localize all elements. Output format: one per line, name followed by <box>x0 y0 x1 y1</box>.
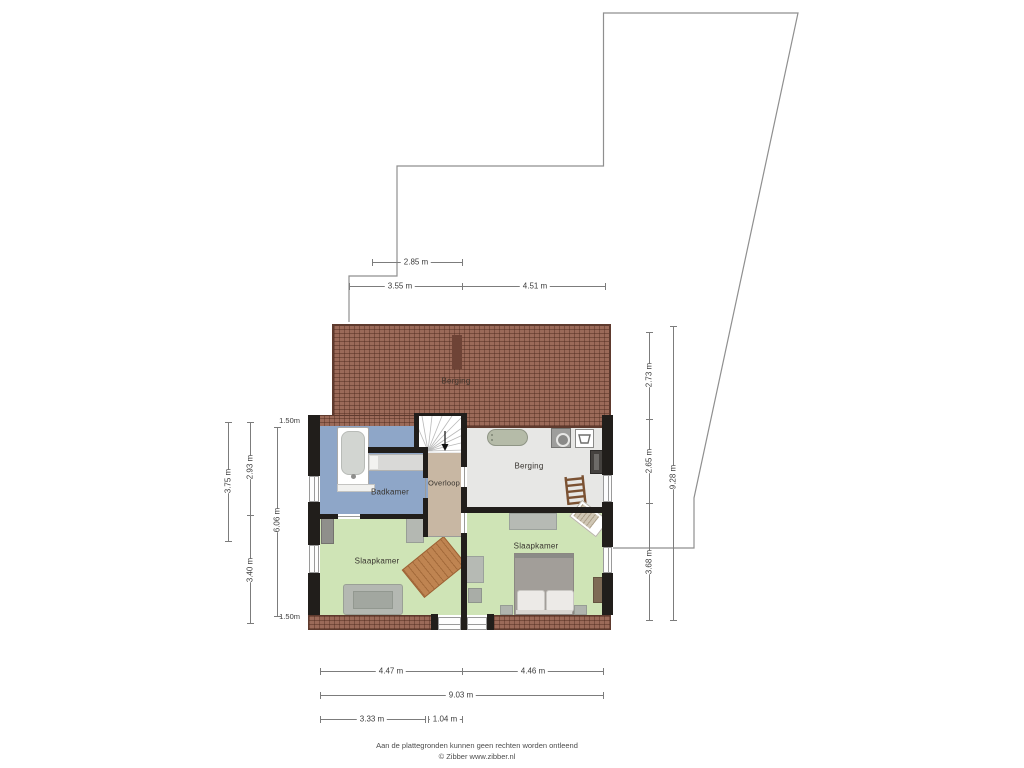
dormer-window <box>438 617 461 630</box>
room-label-badkamer: Badkamer <box>371 488 409 497</box>
door-opening <box>425 478 426 498</box>
door-opening <box>464 467 465 487</box>
footer-disclaimer: Aan de plattegronden kunnen geen rechten… <box>297 740 657 751</box>
door-opening <box>464 513 465 533</box>
pillow <box>546 590 574 612</box>
room-label-slaapkamer-right: Slaapkamer <box>514 542 559 551</box>
bathtub <box>337 427 369 486</box>
door-opening <box>338 516 360 517</box>
wall <box>423 450 428 478</box>
footer-credit: © Zibber www.zibber.nl <box>297 751 657 762</box>
drying-rack-icon <box>561 474 592 507</box>
wall <box>308 415 320 476</box>
roof-edge-bottom-left <box>308 615 432 630</box>
nightstand <box>500 605 513 615</box>
floorplan-page: { "rooms": { "attic": {"label": "Berging… <box>0 0 1024 768</box>
wall <box>314 514 338 519</box>
wall <box>308 502 320 545</box>
window <box>309 476 319 502</box>
door-opening <box>428 536 461 537</box>
washing-machine-icon <box>551 428 571 448</box>
wall <box>602 502 613 547</box>
wardrobe <box>321 518 334 544</box>
room-label-attic: Berging <box>442 377 471 386</box>
desk <box>466 556 484 583</box>
wall <box>467 507 603 513</box>
laundry-basket-icon <box>575 429 594 448</box>
window <box>603 547 612 573</box>
room-label-slaapkamer-left: Slaapkamer <box>355 557 400 566</box>
roof-edge-bottom-right <box>493 615 611 630</box>
room-label-berging: Berging <box>515 462 544 471</box>
dormer-window <box>467 617 487 630</box>
overloop-floor <box>428 450 461 537</box>
chimney <box>452 335 462 369</box>
window <box>309 545 319 573</box>
pillow <box>517 590 545 612</box>
wall <box>461 533 467 630</box>
sofa <box>343 584 403 615</box>
bed <box>514 553 574 615</box>
wall <box>414 413 419 450</box>
height-marker-bottom: 1.50m <box>268 612 300 621</box>
wall <box>360 514 428 519</box>
wall <box>602 415 613 475</box>
wall <box>602 573 613 615</box>
wall <box>487 614 494 630</box>
roof-area <box>332 324 611 428</box>
wall <box>461 413 467 467</box>
bath-mat <box>337 484 375 492</box>
desk <box>406 517 424 543</box>
wall <box>431 614 438 630</box>
vanity-counter <box>368 454 424 471</box>
wall <box>368 447 428 453</box>
bathtub-drain <box>351 474 356 479</box>
chair <box>468 588 482 603</box>
wall <box>308 573 320 615</box>
wall <box>414 413 467 416</box>
nightstand <box>574 605 587 615</box>
footer: Aan de plattegronden kunnen geen rechten… <box>297 740 657 762</box>
ironing-board <box>487 429 528 446</box>
room-label-overloop: Overloop <box>428 479 460 488</box>
height-marker-top: 1.50m <box>268 416 300 425</box>
window <box>603 475 612 502</box>
dresser <box>509 513 557 530</box>
